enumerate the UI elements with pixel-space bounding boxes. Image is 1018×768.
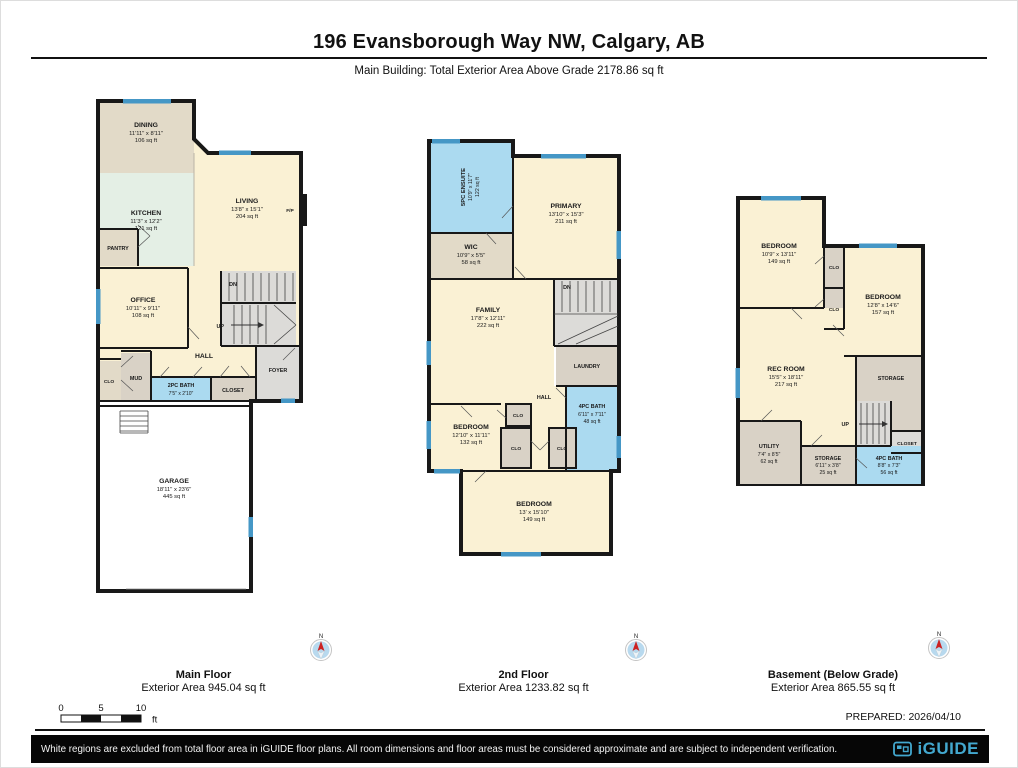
scale-unit: ft: [152, 715, 158, 726]
title-rule: [31, 57, 987, 59]
floor-area: Exterior Area 1233.82 sq ft: [426, 682, 621, 695]
room-label: LAUNDRY: [574, 364, 601, 370]
svg-text:10'9" x 11'7": 10'9" x 11'7": [468, 173, 474, 201]
room-label: 4PC BATH: [876, 456, 903, 462]
iguide-logo: iGUIDE: [893, 739, 979, 759]
svg-text:13'10" x 15'3": 13'10" x 15'3": [548, 212, 583, 218]
svg-text:17'8" x 12'11": 17'8" x 12'11": [471, 316, 506, 322]
room-label: BEDROOM: [865, 294, 901, 301]
svg-text:122 sq ft: 122 sq ft: [475, 176, 481, 196]
svg-text:11'3" x 12'2": 11'3" x 12'2": [130, 219, 161, 225]
svg-text:149 sq ft: 149 sq ft: [523, 517, 546, 523]
room-label: DINING: [134, 122, 158, 129]
svg-text:13' x 15'10": 13' x 15'10": [519, 510, 549, 516]
iguide-camera-icon: [893, 739, 913, 759]
basement-caption: Basement (Below Grade) Exterior Area 865…: [728, 669, 938, 695]
svg-text:62 sq ft: 62 sq ft: [760, 459, 778, 465]
second-floor-caption: 2nd Floor Exterior Area 1233.82 sq ft: [426, 669, 621, 695]
footer-bar: White regions are excluded from total fl…: [31, 735, 989, 763]
room-label: WIC: [464, 244, 477, 251]
svg-text:106 sq ft: 106 sq ft: [135, 138, 158, 144]
main-floor-caption: Main Floor Exterior Area 945.04 sq ft: [96, 669, 311, 695]
footer-rule: [35, 729, 985, 731]
second-floor-rooms: [429, 141, 619, 554]
room-label: CLO: [104, 379, 115, 385]
floor-name: 2nd Floor: [426, 669, 621, 682]
svg-text:6'11" x 7'11": 6'11" x 7'11": [578, 412, 606, 418]
page-subtitle: Main Building: Total Exterior Area Above…: [1, 65, 1017, 77]
floor-plan-page: 196 Evansborough Way NW, Calgary, AB Mai…: [0, 0, 1018, 768]
compass-icon: N: [922, 629, 956, 661]
svg-text:217 sq ft: 217 sq ft: [775, 382, 798, 388]
svg-text:157 sq ft: 157 sq ft: [872, 310, 895, 316]
scale-zero: 0: [58, 703, 63, 714]
room-label: CLOSET: [222, 388, 245, 394]
svg-text:211 sq ft: 211 sq ft: [555, 219, 577, 225]
room-label: CLO: [511, 446, 522, 452]
room-label: STORAGE: [815, 456, 842, 462]
room-label: REC ROOM: [767, 366, 805, 373]
page-title: 196 Evansborough Way NW, Calgary, AB: [1, 31, 1017, 54]
room-label: GARAGE: [159, 478, 189, 485]
svg-text:222 sq ft: 222 sq ft: [477, 323, 500, 329]
compass-icon: N: [619, 631, 653, 663]
room-label: OFFICE: [131, 297, 156, 304]
floor-area: Exterior Area 865.55 sq ft: [728, 682, 938, 695]
room-label: BEDROOM: [516, 501, 552, 508]
svg-text:10'11" x 9'11": 10'11" x 9'11": [126, 306, 160, 312]
room-label: BEDROOM: [453, 424, 489, 431]
svg-text:445 sq ft: 445 sq ft: [163, 494, 186, 500]
room-label: PRIMARY: [550, 203, 582, 210]
svg-text:58 sq ft: 58 sq ft: [461, 260, 480, 266]
scale-ten: 10: [136, 703, 147, 714]
svg-text:7'5" x 2'10": 7'5" x 2'10": [169, 391, 194, 397]
prepared-date: PREPARED: 2026/04/10: [846, 711, 961, 723]
svg-text:13'8" x 15'1": 13'8" x 15'1": [231, 207, 263, 213]
stairs-dn-label: DN: [229, 282, 237, 288]
fireplace-label: F/P: [286, 208, 294, 214]
room-label: CLO: [513, 413, 524, 419]
compass-icon: N: [304, 631, 338, 663]
fireplace-icon: [299, 194, 307, 226]
svg-text:149 sq ft: 149 sq ft: [768, 259, 791, 265]
svg-text:6'11" x 3'8": 6'11" x 3'8": [815, 463, 840, 469]
room-label: HALL: [195, 353, 213, 360]
room-label: BEDROOM: [761, 243, 797, 250]
svg-text:8'8" x 7'3": 8'8" x 7'3": [878, 463, 901, 469]
room-label: FOYER: [269, 368, 288, 374]
svg-text:10'9" x 13'11": 10'9" x 13'11": [762, 252, 797, 258]
svg-text:25 sq ft: 25 sq ft: [819, 470, 837, 476]
room-label: STORAGE: [878, 376, 905, 382]
room-label: HALL: [537, 395, 552, 401]
svg-text:48 sq ft: 48 sq ft: [583, 419, 601, 425]
svg-text:7'4" x 8'5": 7'4" x 8'5": [758, 452, 781, 458]
svg-text:11'11" x 8'11": 11'11" x 8'11": [129, 131, 163, 137]
room-label: 4PC BATH: [579, 404, 606, 410]
stairs-up-label: UP: [842, 422, 850, 428]
svg-text:15'5" x 18'11": 15'5" x 18'11": [769, 375, 804, 381]
room-label: UTILITY: [759, 444, 780, 450]
scale-bar: 0 5 10 ft: [49, 701, 209, 731]
svg-text:18'11" x 23'6": 18'11" x 23'6": [157, 487, 192, 493]
svg-text:12'10" x 11'11": 12'10" x 11'11": [452, 433, 489, 439]
svg-text:10'9" x 5'5": 10'9" x 5'5": [457, 253, 486, 259]
svg-text:121 sq ft: 121 sq ft: [135, 226, 158, 232]
second-floor-plan: 5PC ENSUITE 10'9" x 11'7" 122 sq ft WIC …: [426, 136, 621, 561]
basement-rooms: [738, 198, 923, 486]
disclaimer-text: White regions are excluded from total fl…: [41, 744, 837, 755]
svg-text:204 sq ft: 204 sq ft: [236, 214, 259, 220]
room-label: FAMILY: [476, 307, 501, 314]
stairs-dn-label: DN: [563, 285, 571, 291]
svg-text:132 sq ft: 132 sq ft: [460, 440, 483, 446]
stairs-up-label: UP: [217, 324, 225, 330]
floor-area: Exterior Area 945.04 sq ft: [96, 682, 311, 695]
svg-text:12'8" x 14'6": 12'8" x 14'6": [867, 303, 899, 309]
room-label: PANTRY: [107, 246, 129, 252]
room-label: CLOSET: [897, 441, 917, 447]
room-label: CLO: [557, 446, 568, 452]
floor-name: Basement (Below Grade): [728, 669, 938, 682]
room-label: MUD: [130, 376, 142, 382]
floor-name: Main Floor: [96, 669, 311, 682]
room-label: 5PC ENSUITE: [461, 168, 467, 206]
main-floor-plan: DINING 11'11" x 8'11" 106 sq ft KITCHEN …: [96, 99, 311, 596]
scale-five: 5: [98, 703, 103, 714]
room-label: 2PC BATH: [168, 383, 195, 389]
svg-text:108 sq ft: 108 sq ft: [132, 313, 155, 319]
basement-plan: BEDROOM 10'9" x 13'11" 149 sq ft CLO CLO…: [731, 196, 926, 486]
svg-text:56 sq ft: 56 sq ft: [880, 470, 898, 476]
iguide-wordmark: iGUIDE: [917, 739, 979, 759]
room-label: LIVING: [236, 198, 259, 205]
room-label: CLO: [829, 265, 840, 271]
room-label: KITCHEN: [131, 210, 161, 217]
room-label: CLO: [829, 307, 840, 313]
